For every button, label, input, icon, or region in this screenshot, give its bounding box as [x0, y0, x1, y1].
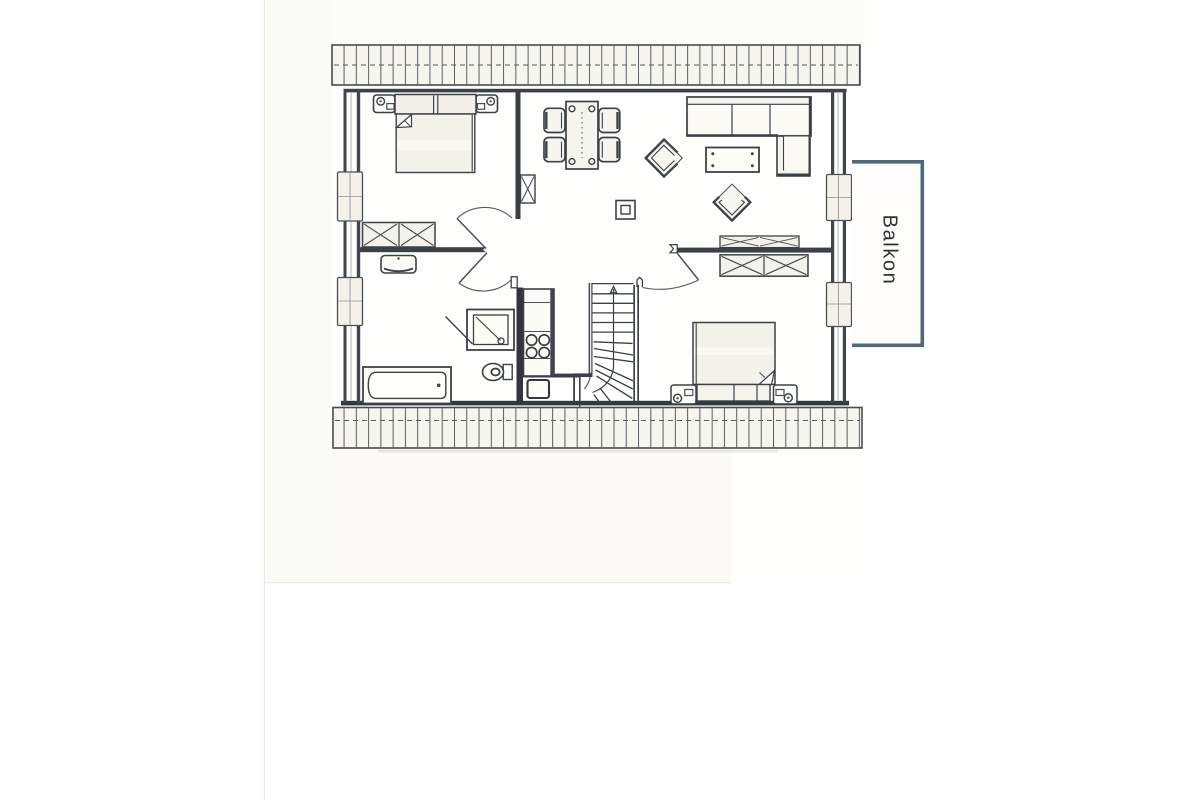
- svg-text:Balkon: Balkon: [879, 215, 901, 286]
